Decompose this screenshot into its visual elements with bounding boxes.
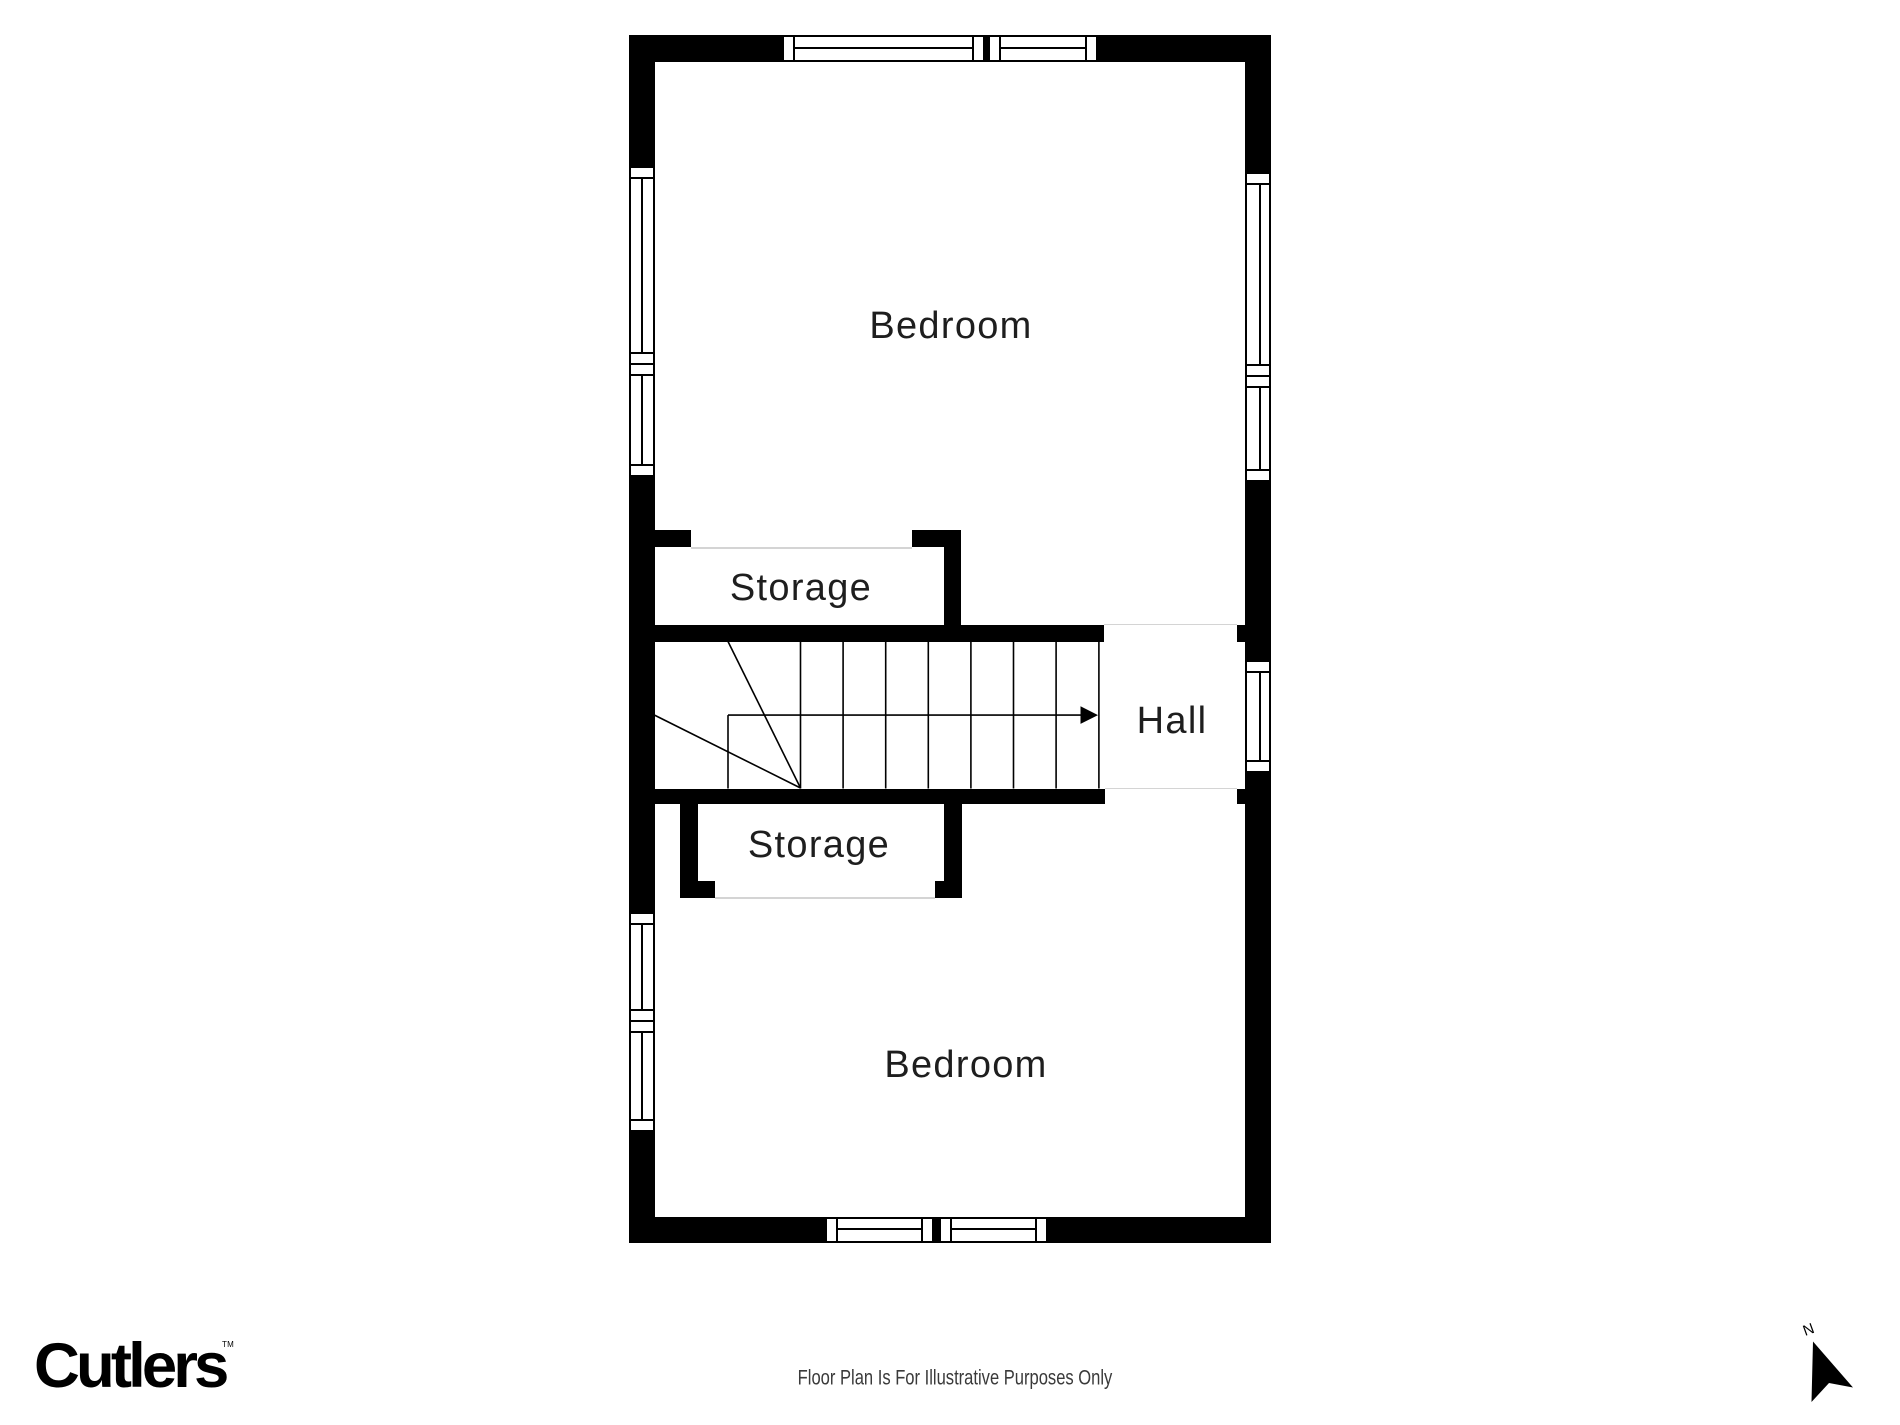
svg-text:N: N (1801, 1320, 1817, 1340)
